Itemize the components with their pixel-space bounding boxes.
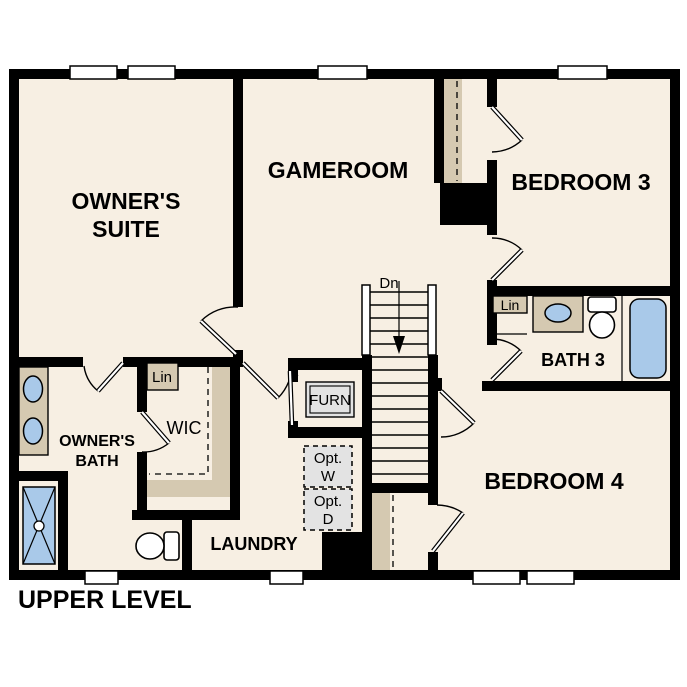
wic-side-shelf: [212, 363, 230, 497]
wall-suite-gameroom: [233, 79, 243, 307]
wall-toilet-nook: [182, 520, 192, 570]
floorplan-drawing: OWNER'S SUITE GAMEROOM BEDROOM 3 BATH 3 …: [0, 0, 687, 687]
window: [473, 571, 520, 584]
wall-bedroom3-west-stub: [487, 225, 497, 235]
opt-washer-label-line2: W: [321, 468, 336, 485]
sink-icon: [545, 304, 571, 322]
wall-wic-west-1: [137, 367, 147, 412]
wall-gameroom-closet: [434, 79, 444, 183]
wall-stairs-west: [362, 355, 372, 570]
owners-bath-label-line1: OWNER'S: [59, 433, 135, 450]
wall-wic-east: [230, 357, 240, 520]
toilet-icon: [136, 533, 164, 559]
wall-furnace-north: [288, 358, 362, 370]
window: [527, 571, 574, 584]
window: [85, 571, 118, 584]
window: [318, 66, 367, 79]
window: [270, 571, 303, 584]
stairs-dn-label: Dn: [379, 275, 398, 292]
window: [558, 66, 607, 79]
wall-bedroom3-west-2: [487, 160, 497, 183]
bath3-label: BATH 3: [541, 350, 605, 370]
wall-shower-top: [13, 471, 68, 481]
bedroom4-label: BEDROOM 4: [484, 468, 624, 494]
wall-bedroom4-north: [482, 381, 670, 391]
bedroom3-label: BEDROOM 3: [511, 169, 650, 195]
opt-dryer-label-line2: D: [323, 511, 334, 528]
wall-suite-south-1: [19, 357, 83, 367]
bath3-linen-label: Lin: [501, 297, 520, 313]
window: [70, 66, 117, 79]
wall-wic-west-2: [137, 452, 147, 520]
wall-bedroom3-west-1: [487, 79, 497, 107]
stair-railing-right: [428, 285, 436, 355]
owners-suite-label-line2: SUITE: [92, 216, 160, 242]
gameroom-label: GAMEROOM: [268, 157, 409, 183]
bedroom4-closet-shelf: [372, 493, 390, 570]
owners-suite-label-line1: OWNER'S: [72, 188, 181, 214]
wall-wic-south: [132, 510, 240, 520]
wall-outer-left: [9, 69, 19, 580]
opt-dryer-label-line1: Opt.: [314, 493, 342, 510]
chase-block: [440, 183, 497, 225]
owners-bath-label-line2: BATH: [75, 453, 118, 470]
wall-shower-side: [58, 481, 68, 570]
opt-washer-label-line1: Opt.: [314, 450, 342, 467]
wic-bottom-shelf: [147, 480, 230, 497]
bedroom3-closet-shelf: [444, 79, 462, 183]
stair-railing-left: [362, 285, 370, 355]
sink-icon: [24, 418, 43, 444]
furnace-label: FURN: [309, 392, 351, 409]
bathtub-icon: [630, 299, 666, 378]
laundry-label: LAUNDRY: [210, 534, 297, 554]
wall-stairs-east: [428, 355, 438, 505]
wall-stairs-bottom: [362, 483, 438, 493]
toilet-icon: [590, 312, 615, 338]
window: [128, 66, 175, 79]
toilet-tank: [164, 532, 179, 560]
wall-stairs-east-stub: [428, 552, 438, 570]
wall-bedroom3-south: [493, 286, 670, 296]
wall-suite-south-2: [123, 357, 243, 367]
plan-title: UPPER LEVEL: [18, 586, 192, 614]
floorplan-upper-level: OWNER'S SUITE GAMEROOM BEDROOM 3 BATH 3 …: [0, 0, 687, 687]
wall-outer-right: [670, 69, 680, 580]
laundry-corner-block: [322, 532, 362, 570]
wic-label: WIC: [167, 418, 202, 438]
toilet-tank: [588, 297, 616, 312]
wall-furnace-south: [288, 427, 362, 438]
wic-linen-label: Lin: [152, 369, 172, 386]
shower-drain: [34, 521, 44, 531]
sink-icon: [24, 376, 43, 402]
